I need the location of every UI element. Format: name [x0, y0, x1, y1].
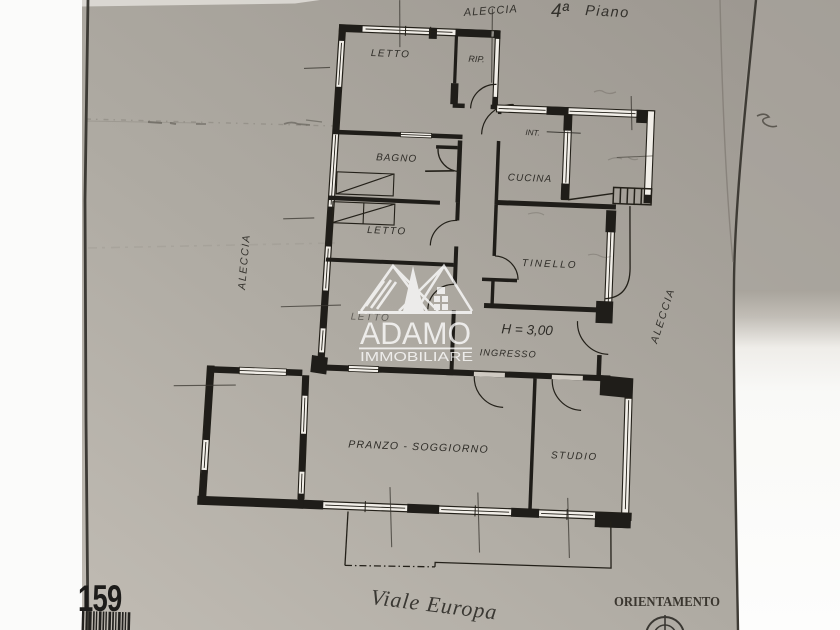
- svg-text:LETTO: LETTO: [367, 225, 407, 238]
- svg-text:Piano: Piano: [585, 3, 630, 21]
- svg-text:LETTO: LETTO: [371, 48, 411, 61]
- svg-text:ORIENTAMENTO: ORIENTAMENTO: [614, 594, 720, 609]
- svg-text:STUDIO: STUDIO: [551, 450, 598, 463]
- svg-text:INT.: INT.: [525, 128, 540, 138]
- svg-text:BAGNO: BAGNO: [376, 152, 418, 165]
- svg-text:H = 3,00: H = 3,00: [501, 321, 553, 338]
- svg-text:CUCINA: CUCINA: [508, 172, 553, 185]
- svg-text:IMMOBILIARE: IMMOBILIARE: [360, 349, 473, 364]
- svg-text:4ª: 4ª: [551, 1, 570, 22]
- svg-text:TINELLO: TINELLO: [522, 258, 578, 271]
- svg-text:ADAMO: ADAMO: [360, 315, 471, 351]
- svg-text:RIP.: RIP.: [468, 54, 485, 65]
